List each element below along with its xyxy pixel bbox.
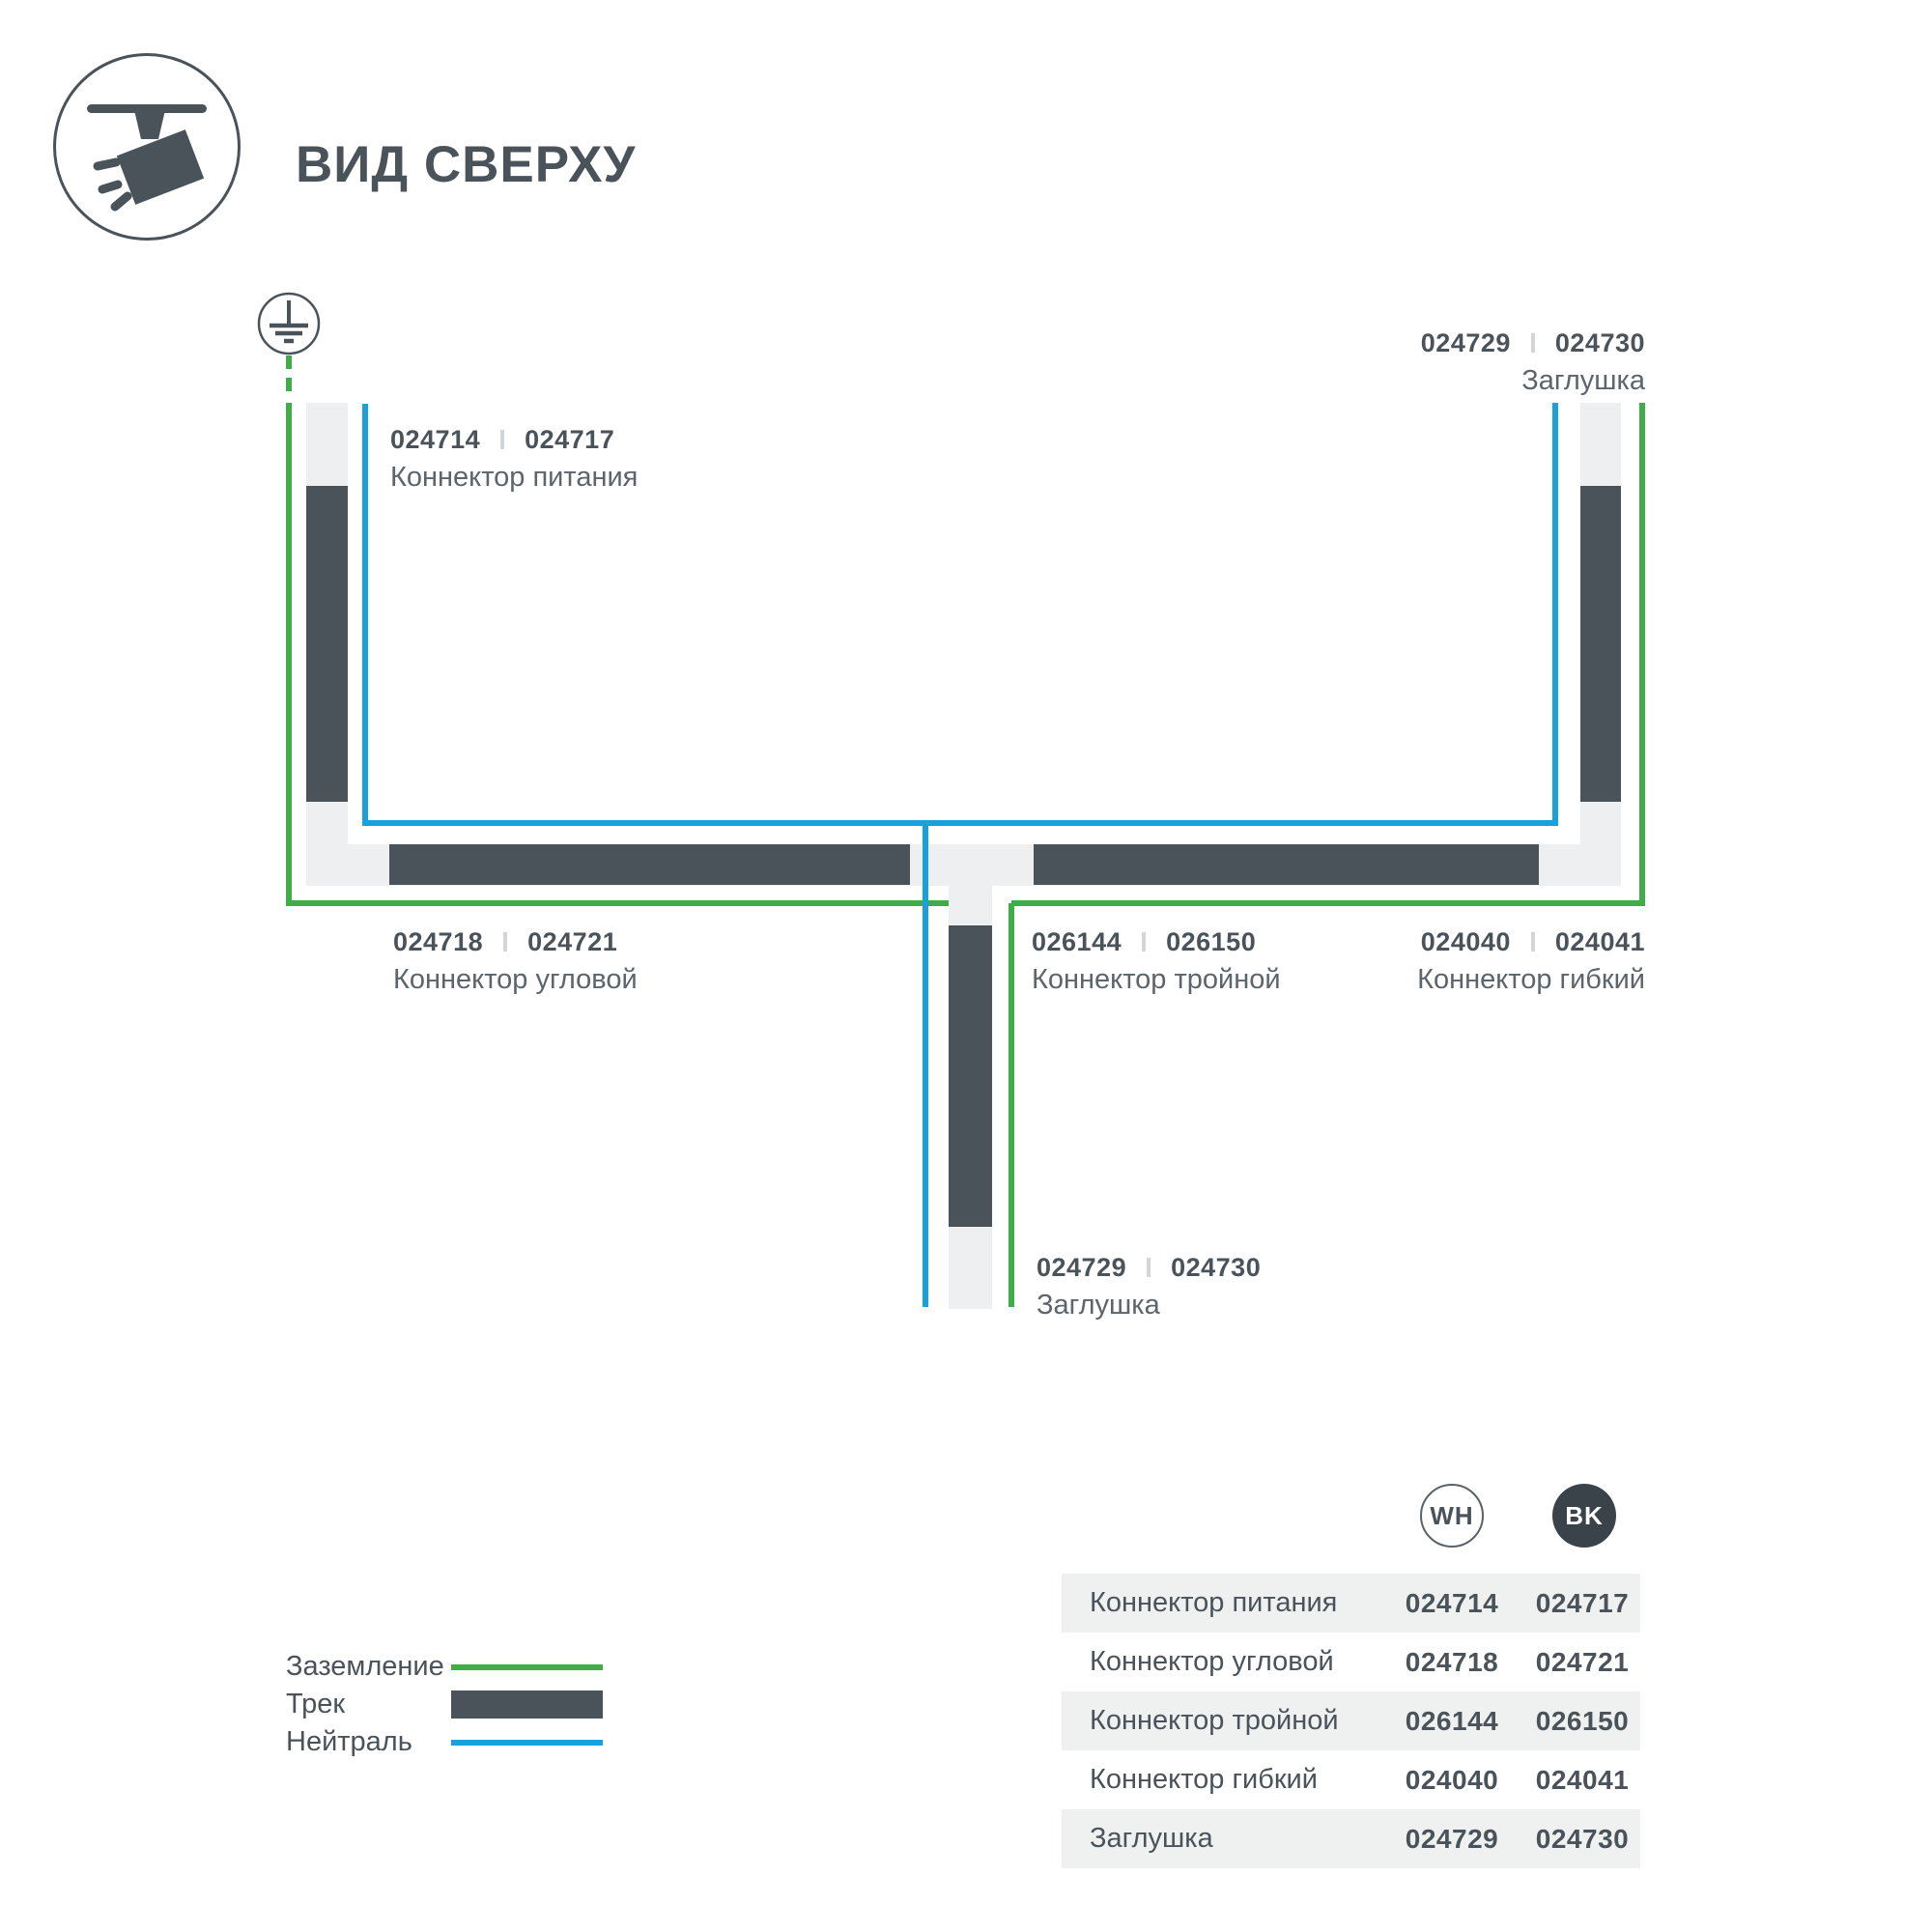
code-bk: 024721 [527, 928, 617, 955]
part-codes: 024040 024041 [1421, 928, 1645, 955]
code-wh: 024729 [1037, 1254, 1126, 1281]
table-row: Коннектор тройной 026144 026150 [1062, 1691, 1640, 1750]
part-codes: 024729 024730 [1421, 329, 1645, 356]
label-endcap-top: 024729 024730 Заглушка [1421, 329, 1645, 394]
row-code-wh: 024040 [1379, 1765, 1524, 1796]
column-header-white: WH [1420, 1484, 1484, 1548]
track-bar-right-vertical [1580, 486, 1621, 802]
code-separator [1531, 333, 1535, 353]
row-code-bk: 026150 [1524, 1706, 1640, 1737]
track-bar-stem [949, 925, 992, 1227]
part-name: Заглушка [1037, 1292, 1261, 1319]
row-code-wh: 024714 [1379, 1588, 1524, 1619]
part-codes: 024729 024730 [1037, 1254, 1261, 1281]
part-name: Коннектор гибкий [1417, 966, 1645, 993]
label-triple-connector: 026144 026150 Коннектор тройной [1032, 928, 1281, 993]
row-code-bk: 024041 [1524, 1765, 1640, 1796]
code-bk: 026150 [1166, 928, 1256, 955]
code-wh: 024714 [390, 426, 480, 453]
neutral-line-swatch [451, 1740, 603, 1746]
label-endcap-bottom: 024729 024730 Заглушка [1037, 1254, 1261, 1319]
row-name: Коннектор гибкий [1062, 1764, 1379, 1796]
code-bk: 024041 [1555, 928, 1645, 955]
part-codes: 024714 024717 [390, 426, 638, 453]
part-codes: 026144 026150 [1032, 928, 1281, 955]
column-header-black: BK [1552, 1484, 1616, 1548]
table-row: Коннектор угловой 024718 024721 [1062, 1633, 1640, 1691]
row-code-wh: 024718 [1379, 1647, 1524, 1678]
track-bar-left-vertical [306, 486, 348, 802]
part-name: Коннектор питания [390, 464, 638, 491]
table-row: Коннектор питания 024714 024717 [1062, 1574, 1640, 1633]
legend-label: Нейтраль [286, 1726, 451, 1758]
code-wh: 024040 [1421, 928, 1511, 955]
row-code-wh: 026144 [1379, 1706, 1524, 1737]
legend-item-track: Трек [286, 1686, 603, 1723]
ground-line-bottom-right [1011, 403, 1642, 903]
track-bar-horizontal-right [1034, 844, 1539, 885]
row-name: Коннектор угловой [1062, 1646, 1379, 1678]
code-separator [1147, 1258, 1151, 1277]
legend: Заземление Трек Нейтраль [286, 1648, 603, 1761]
row-code-bk: 024721 [1524, 1647, 1640, 1678]
code-wh: 024718 [393, 928, 483, 955]
code-wh: 024729 [1421, 329, 1511, 356]
code-separator [500, 430, 504, 449]
ground-symbol-icon [259, 294, 319, 354]
track-lighting-scheme-page: { "page": { "title": "ВИД СВЕРХУ" }, "co… [0, 0, 1932, 1932]
row-code-bk: 024730 [1524, 1824, 1640, 1855]
row-name: Коннектор тройной [1062, 1705, 1379, 1737]
track-bar-swatch [451, 1690, 603, 1719]
label-corner-connector: 024718 024721 Коннектор угловой [393, 928, 638, 993]
code-wh: 026144 [1032, 928, 1122, 955]
code-separator [1142, 932, 1146, 952]
row-name: Коннектор питания [1062, 1587, 1379, 1619]
table-column-headers: WH BK [1062, 1484, 1640, 1548]
parts-table: WH BK Коннектор питания 024714 024717 Ко… [1062, 1484, 1640, 1868]
part-codes: 024718 024721 [393, 928, 638, 955]
table-row: Коннектор гибкий 024040 024041 [1062, 1750, 1640, 1809]
part-name: Заглушка [1521, 367, 1645, 394]
row-code-bk: 024717 [1524, 1588, 1640, 1619]
code-separator [503, 932, 507, 952]
code-bk: 024717 [525, 426, 614, 453]
code-bk: 024730 [1555, 329, 1645, 356]
code-bk: 024730 [1171, 1254, 1261, 1281]
ground-line-swatch [451, 1664, 603, 1670]
part-name: Коннектор тройной [1032, 966, 1281, 993]
table-row: Заглушка 024729 024730 [1062, 1809, 1640, 1868]
legend-label: Заземление [286, 1651, 451, 1683]
row-code-wh: 024729 [1379, 1824, 1524, 1855]
legend-label: Трек [286, 1689, 451, 1720]
legend-item-neutral: Нейтраль [286, 1723, 603, 1761]
row-name: Заглушка [1062, 1823, 1379, 1855]
label-flexible-connector: 024040 024041 Коннектор гибкий [1417, 928, 1645, 993]
track-bar-horizontal-left [389, 844, 910, 885]
label-power-connector: 024714 024717 Коннектор питания [390, 426, 638, 491]
part-name: Коннектор угловой [393, 966, 638, 993]
code-separator [1531, 932, 1535, 952]
legend-item-ground: Заземление [286, 1648, 603, 1686]
